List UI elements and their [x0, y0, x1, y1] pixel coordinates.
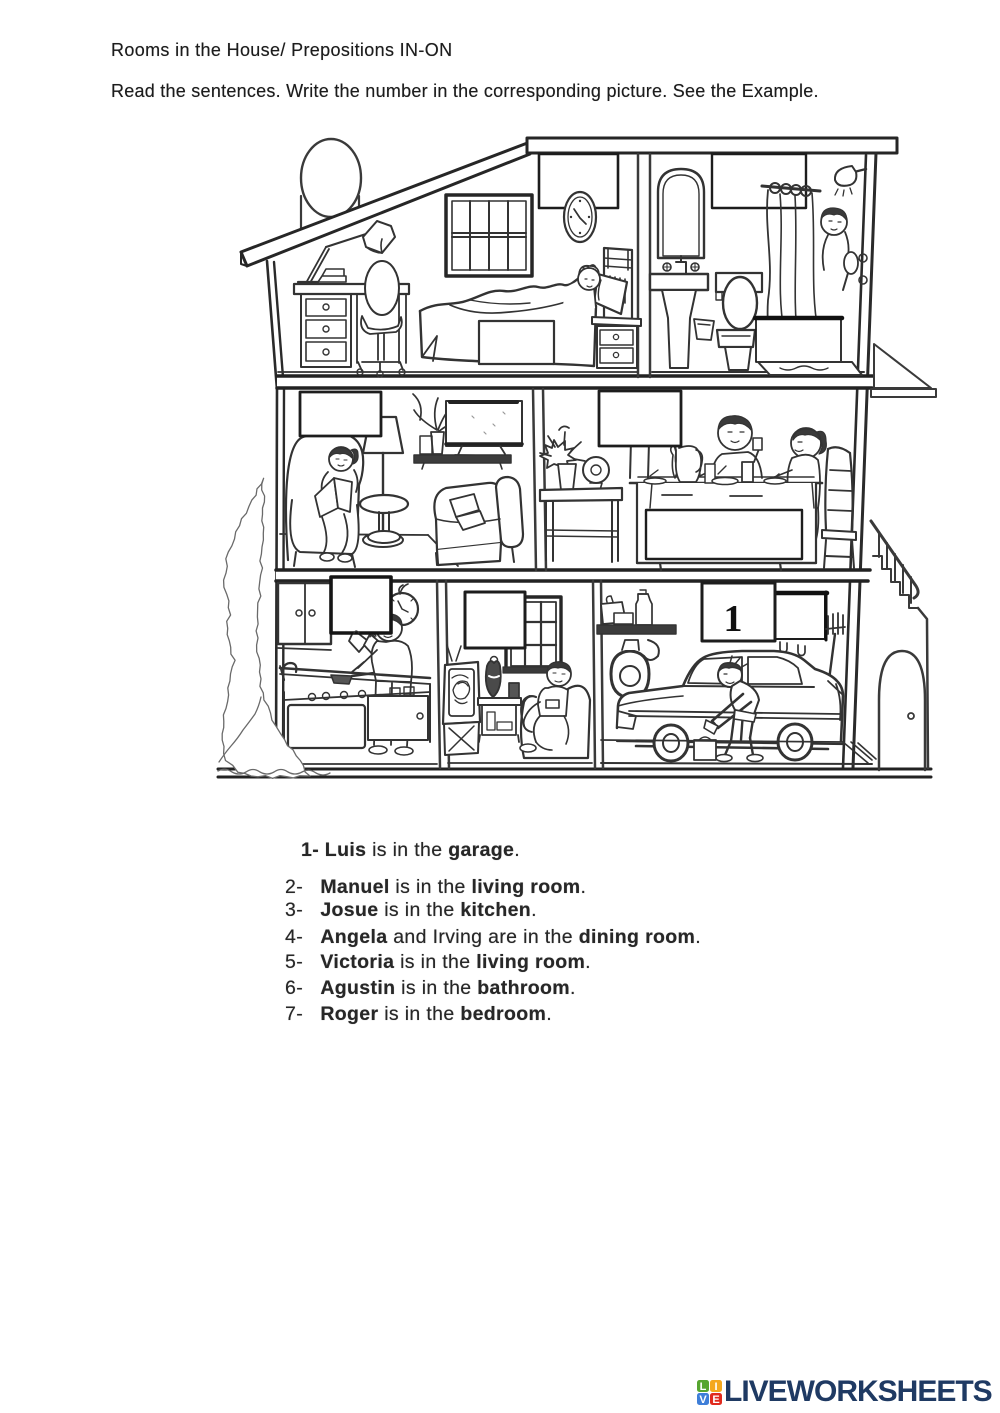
svg-text:E: E	[712, 1394, 719, 1406]
svg-text:V: V	[699, 1394, 707, 1406]
svg-text:1: 1	[724, 598, 743, 640]
svg-text:L: L	[700, 1381, 707, 1393]
svg-text:I: I	[714, 1381, 717, 1393]
